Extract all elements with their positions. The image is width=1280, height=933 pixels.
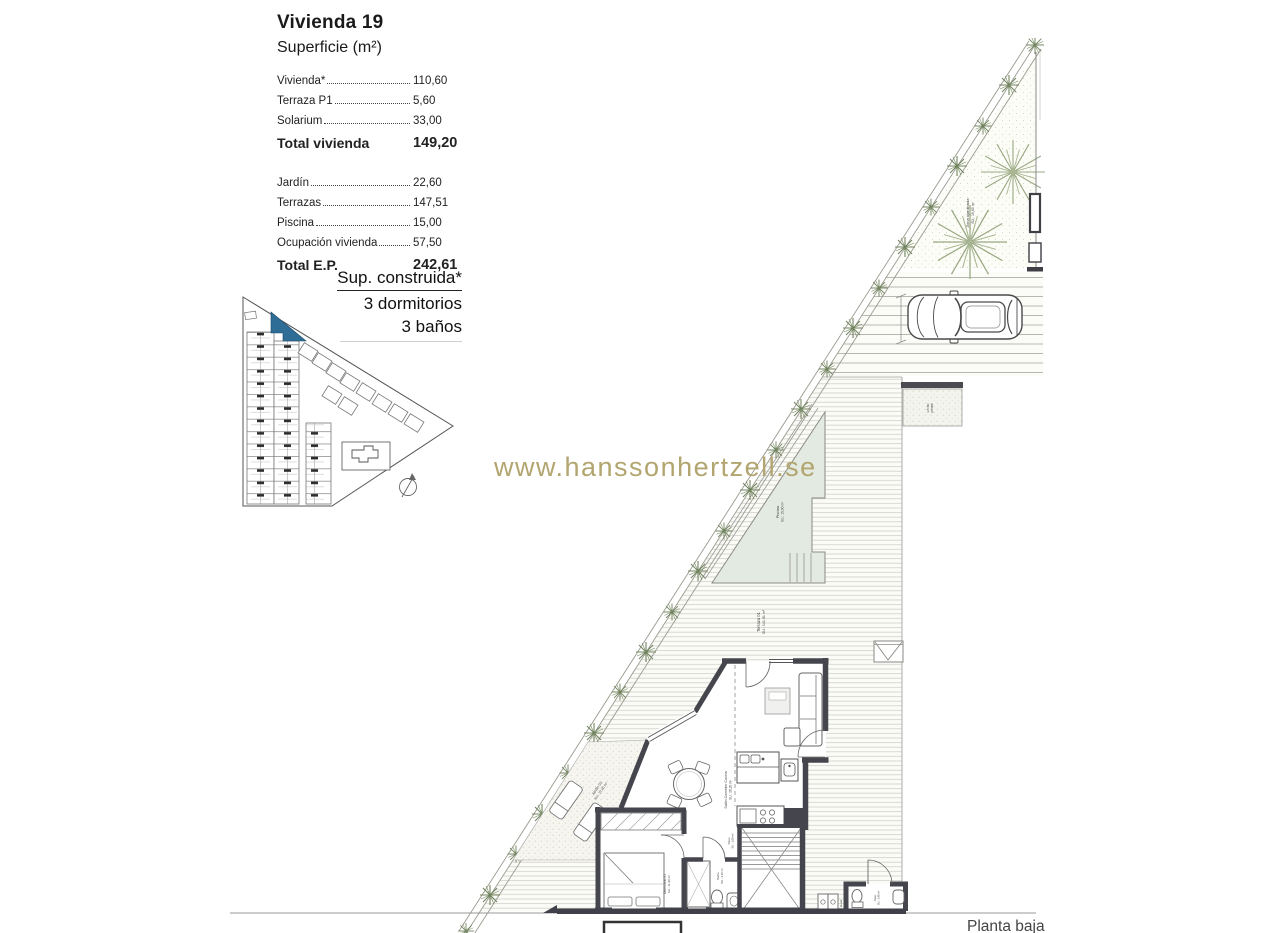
pedestrian-gate	[1029, 243, 1041, 262]
car-icon	[908, 291, 1022, 343]
gate-pillar	[1030, 194, 1040, 232]
watermark: www.hanssonhertzell.se	[494, 452, 817, 483]
page-title: Vivienda 19	[277, 12, 463, 34]
scale-bar	[604, 922, 681, 933]
garden-triangle	[893, 52, 1036, 268]
svg-text:Zona ajardinada: Zona ajardinada	[965, 198, 970, 228]
svg-text:Salón Comedor Cocina: Salón Comedor Cocina	[724, 771, 728, 808]
svg-text:SU.: 28,20 m²: SU.: 28,20 m²	[728, 780, 732, 800]
siteplan-hut	[245, 311, 257, 319]
svg-text:lavad.: lavad.	[839, 899, 843, 907]
svg-text:SU.: 15,00 m²: SU.: 15,00 m²	[781, 501, 785, 522]
siteplan-common-building	[342, 442, 390, 470]
svg-text:Piscina: Piscina	[776, 505, 780, 518]
svg-text:SU.: 16,60 m²: SU.: 16,60 m²	[971, 201, 975, 223]
svg-text:SU.: 4,35 m²: SU.: 4,35 m²	[720, 868, 724, 884]
svg-text:SU.: 1,06 m²: SU.: 1,06 m²	[731, 833, 735, 848]
svg-text:Aseo: Aseo	[873, 894, 877, 901]
svg-text:piedra: piedra	[930, 403, 934, 412]
floorplan-page: Vivienda 19 Superficie (m²) Vivienda*110…	[0, 0, 1280, 933]
driveway-gate-post	[1027, 267, 1043, 272]
svg-text:Paso: Paso	[727, 837, 731, 844]
svg-text:SU.: 11,90 m²: SU.: 11,90 m²	[667, 875, 671, 893]
site-plan-minimap	[235, 288, 463, 510]
svg-text:Terraza 01: Terraza 01	[756, 611, 761, 631]
floor-label: Planta baja	[967, 918, 1045, 933]
drain-symbol	[874, 641, 903, 662]
svg-text:SU.: 1,96 m²: SU.: 1,96 m²	[877, 891, 881, 906]
laundry-units	[818, 894, 838, 911]
north-arrow-icon	[400, 473, 417, 497]
svg-text:SU.: 141,91 m²: SU.: 141,91 m²	[762, 609, 766, 634]
